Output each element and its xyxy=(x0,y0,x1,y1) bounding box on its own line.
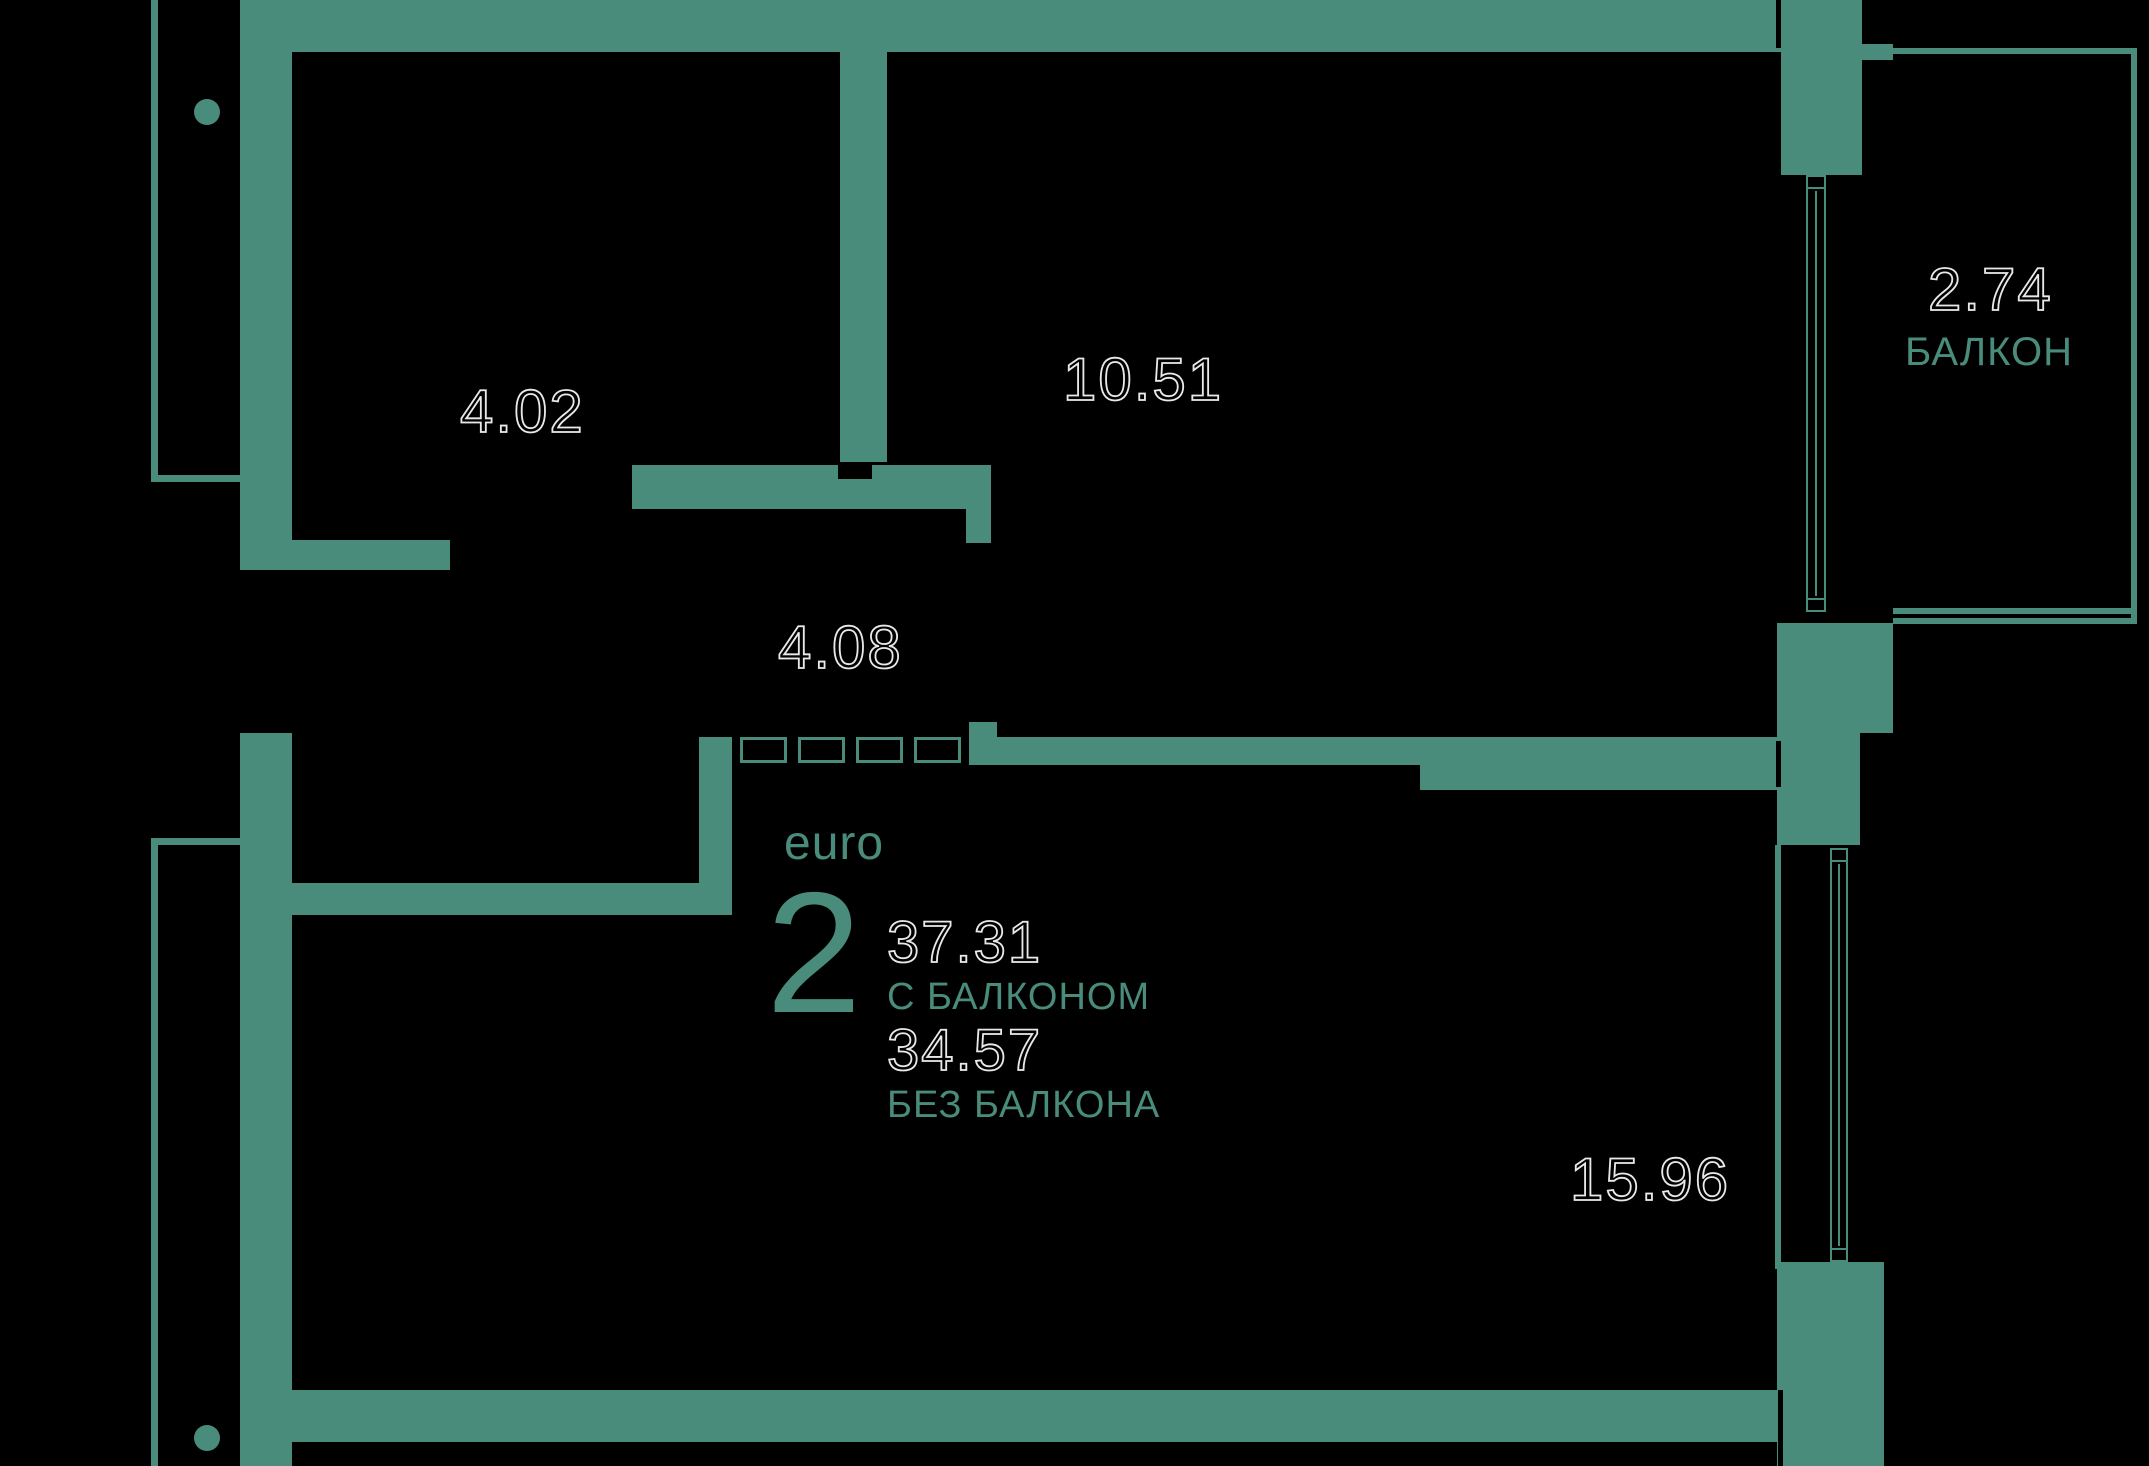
area-with-balcony-label: С БАЛКОНОМ xyxy=(887,978,1150,1016)
wall-divider-rooms-top xyxy=(840,52,887,462)
window-pier-upper xyxy=(1777,623,1893,733)
opening-dash-1 xyxy=(740,737,787,763)
joint-slit-bottom xyxy=(1778,1390,1783,1466)
balcony-name-label: БАЛКОН xyxy=(1905,332,2073,372)
balcony-window xyxy=(1806,175,1826,612)
apartment-rooms-count: 2 xyxy=(766,878,862,1029)
stairwell-line-lower-stub xyxy=(151,838,240,845)
joint-slit-middle xyxy=(1776,741,1781,787)
joint-slit-top xyxy=(1776,0,1781,48)
bedroom-window xyxy=(1830,848,1848,1262)
opening-left-jamb xyxy=(699,737,732,915)
door-dot-upper xyxy=(194,99,220,125)
balcony-outline-top xyxy=(1862,48,2137,54)
balcony-outline-bottom-inner xyxy=(1893,618,2137,624)
balcony-window-cap-top xyxy=(1806,175,1826,189)
bedroom-window-glass-line xyxy=(1838,864,1840,1246)
balcony-area-label: 2.74 xyxy=(1928,260,2053,320)
room-top-middle-area-label: 10.51 xyxy=(1063,350,1223,410)
wall-bottom-right-block xyxy=(1777,1262,1884,1466)
balcony-window-cap-bottom xyxy=(1806,598,1826,612)
window-pier-lower xyxy=(1777,733,1860,845)
stairwell-line-lower-vertical xyxy=(151,838,158,1466)
wall-top xyxy=(240,0,1862,52)
bedroom-window-cap-top xyxy=(1830,848,1848,862)
wall-corridor-step xyxy=(966,509,991,543)
room-top-left-area-label: 4.02 xyxy=(460,382,585,442)
opening-dash-3 xyxy=(856,737,903,763)
opening-dash-4 xyxy=(914,737,961,763)
stairwell-line-upper-stub xyxy=(151,475,240,482)
area-without-balcony-label: БЕЗ БАЛКОНА xyxy=(887,1086,1160,1124)
wall-under-room-top-left xyxy=(240,540,450,570)
balcony-outline-right xyxy=(2131,48,2137,624)
stairwell-line-upper-vertical xyxy=(151,0,158,482)
area-without-balcony-value: 34.57 xyxy=(887,1022,1042,1080)
floor-plan: 4.02 10.51 4.08 2.74 БАЛКОН 15.96 euro 2… xyxy=(0,0,2149,1466)
balcony-wall-block xyxy=(1781,0,1862,175)
wall-left-lower xyxy=(240,733,292,1466)
wall-bottom xyxy=(292,1390,1777,1442)
wall-right-inner-line xyxy=(1775,845,1781,1269)
opening-dash-2 xyxy=(798,737,845,763)
wall-joint-notch xyxy=(838,465,872,479)
opening-right-jamb xyxy=(969,722,997,765)
wall-bedroom-top-thick xyxy=(1420,737,1777,790)
area-with-balcony-value: 37.31 xyxy=(887,914,1042,972)
room-bottom-right-area-label: 15.96 xyxy=(1570,1150,1730,1210)
balcony-window-glass-line xyxy=(1815,191,1817,596)
door-dot-lower xyxy=(194,1425,220,1451)
bedroom-window-cap-bottom xyxy=(1830,1248,1848,1262)
balcony-outline-bottom-outer xyxy=(1893,608,2137,614)
wall-corridor-top xyxy=(632,465,991,509)
wall-hallway-horizontal xyxy=(292,883,722,915)
wall-bedroom-top-thin xyxy=(997,737,1420,765)
wall-left-upper xyxy=(240,0,292,570)
corridor-area-label: 4.08 xyxy=(778,618,903,678)
